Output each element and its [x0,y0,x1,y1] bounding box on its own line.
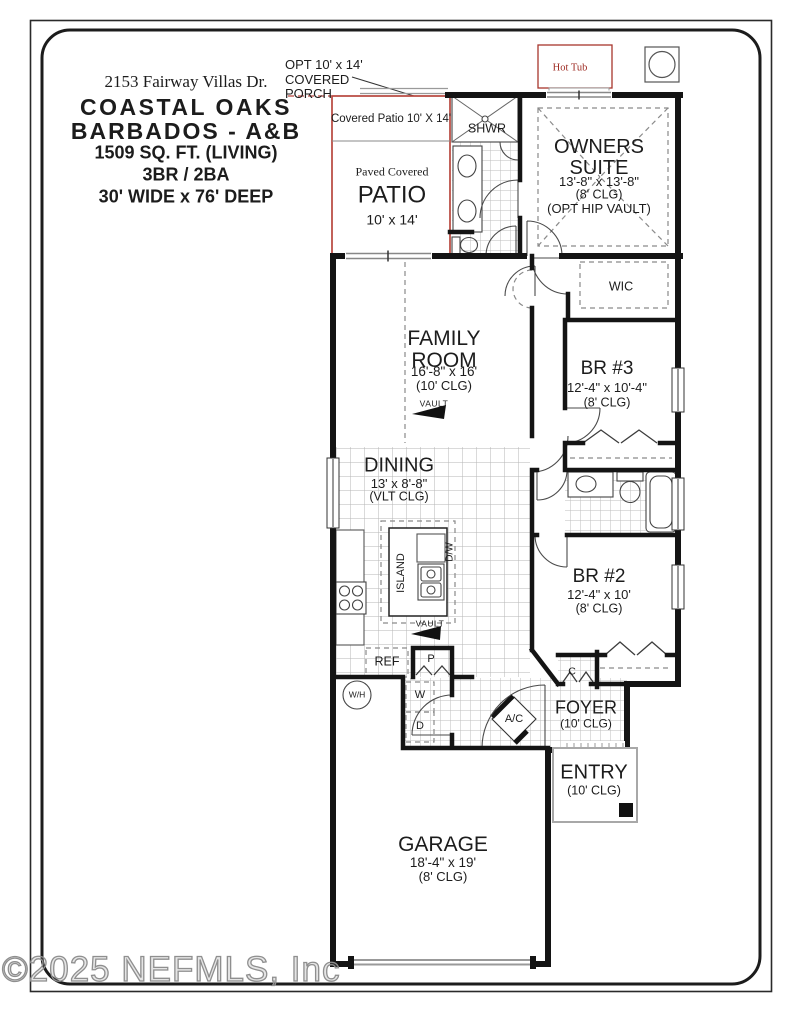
entry-column [619,803,633,817]
garage-clg: (8' CLG) [419,870,468,884]
br3-closet-bifold [583,430,657,443]
plan-title-line2: BARBADOS - A&B [71,119,301,143]
watermark: ©2025 NEFMLS, Inc [2,950,340,990]
entry-name: ENTRY [560,762,627,783]
water-heater-label: W/H [349,691,366,700]
arched-opening [513,270,532,308]
garage-door [348,956,536,970]
wic-door-arc [532,258,568,294]
dining-clg: (VLT CLG) [369,490,428,503]
dryer-label: D [416,721,424,733]
br3-clg: (8' CLG) [584,396,631,409]
pantry-label: P [427,654,434,666]
dishwasher-label: D/W [446,542,457,561]
family-room-clg: (10' CLG) [416,379,472,393]
kitchen-vault-label: VAULT [416,620,445,629]
family-room-dims: 16'-8" x 16' [411,365,477,379]
br2-closet-bifold [605,642,667,655]
br3-door-arc [565,408,600,443]
dining-name: DINING [364,455,434,476]
bedroom-hall-door-arc [532,436,568,472]
patio-slider-door [345,251,432,262]
patio-dims: 10' x 14' [366,213,417,228]
owners-suite-name: OWNERS SUITE [554,137,644,179]
br2-door-arc [535,535,567,567]
garage-name: GARAGE [398,834,488,856]
bath2-vanity-icon [568,472,613,497]
family-vault-label: VAULT [420,400,449,409]
wic-label: WIC [609,280,633,293]
covered-patio-label: Covered Patio 10' X 14' [331,113,451,125]
plan-title-line1: COASTAL OAKS [80,95,292,119]
br3-name: BR #3 [581,359,634,379]
ac-label: A/C [505,714,523,726]
kitchen-sink-icon [418,564,444,600]
br2-name: BR #2 [573,567,626,587]
island-label: ISLAND [396,553,408,593]
owners-suite-clg: (8' CLG) [576,188,623,201]
foyer-name: FOYER [555,698,617,717]
entry-clg: (10' CLG) [567,784,621,797]
address: 2153 Fairway Villas Dr. [105,73,268,91]
br2-clg: (8' CLG) [576,602,623,615]
foyer-clg: (10' CLG) [560,718,612,731]
bath2-door-arc [537,470,567,500]
shower-label: SHWR [468,122,506,135]
sqft-label: 1509 SQ. FT. (LIVING) [94,143,277,162]
patio-name: PATIO [358,182,426,207]
beds-baths-label: 3BR / 2BA [142,165,229,184]
owners-suite-opt: (OPT HIP VAULT) [547,202,651,216]
double-vanity-icon [453,146,482,232]
stove-icon [336,582,366,614]
hot-tub-slider-door [546,91,612,100]
washer-label: W [415,690,425,702]
patio-pretitle: Paved Covered [356,166,429,179]
garage-dims: 18'-4" x 19' [410,856,476,870]
br3-dims: 12'-4" x 10'-4" [567,381,647,395]
equipment-pad-icon [645,47,679,82]
hot-tub-label: Hot Tub [553,62,588,73]
br2-dims: 12'-4" x 10' [567,588,631,602]
floor-plan-page: 2153 Fairway Villas Dr. COASTAL OAKS BAR… [0,0,800,1021]
opt-porch-note: OPT 10' x 14' COVERED PORCH [285,58,363,102]
size-label: 30' WIDE x 76' DEEP [99,187,274,206]
refrigerator-label: REF [375,655,400,668]
closet-c-label: C [568,666,576,677]
